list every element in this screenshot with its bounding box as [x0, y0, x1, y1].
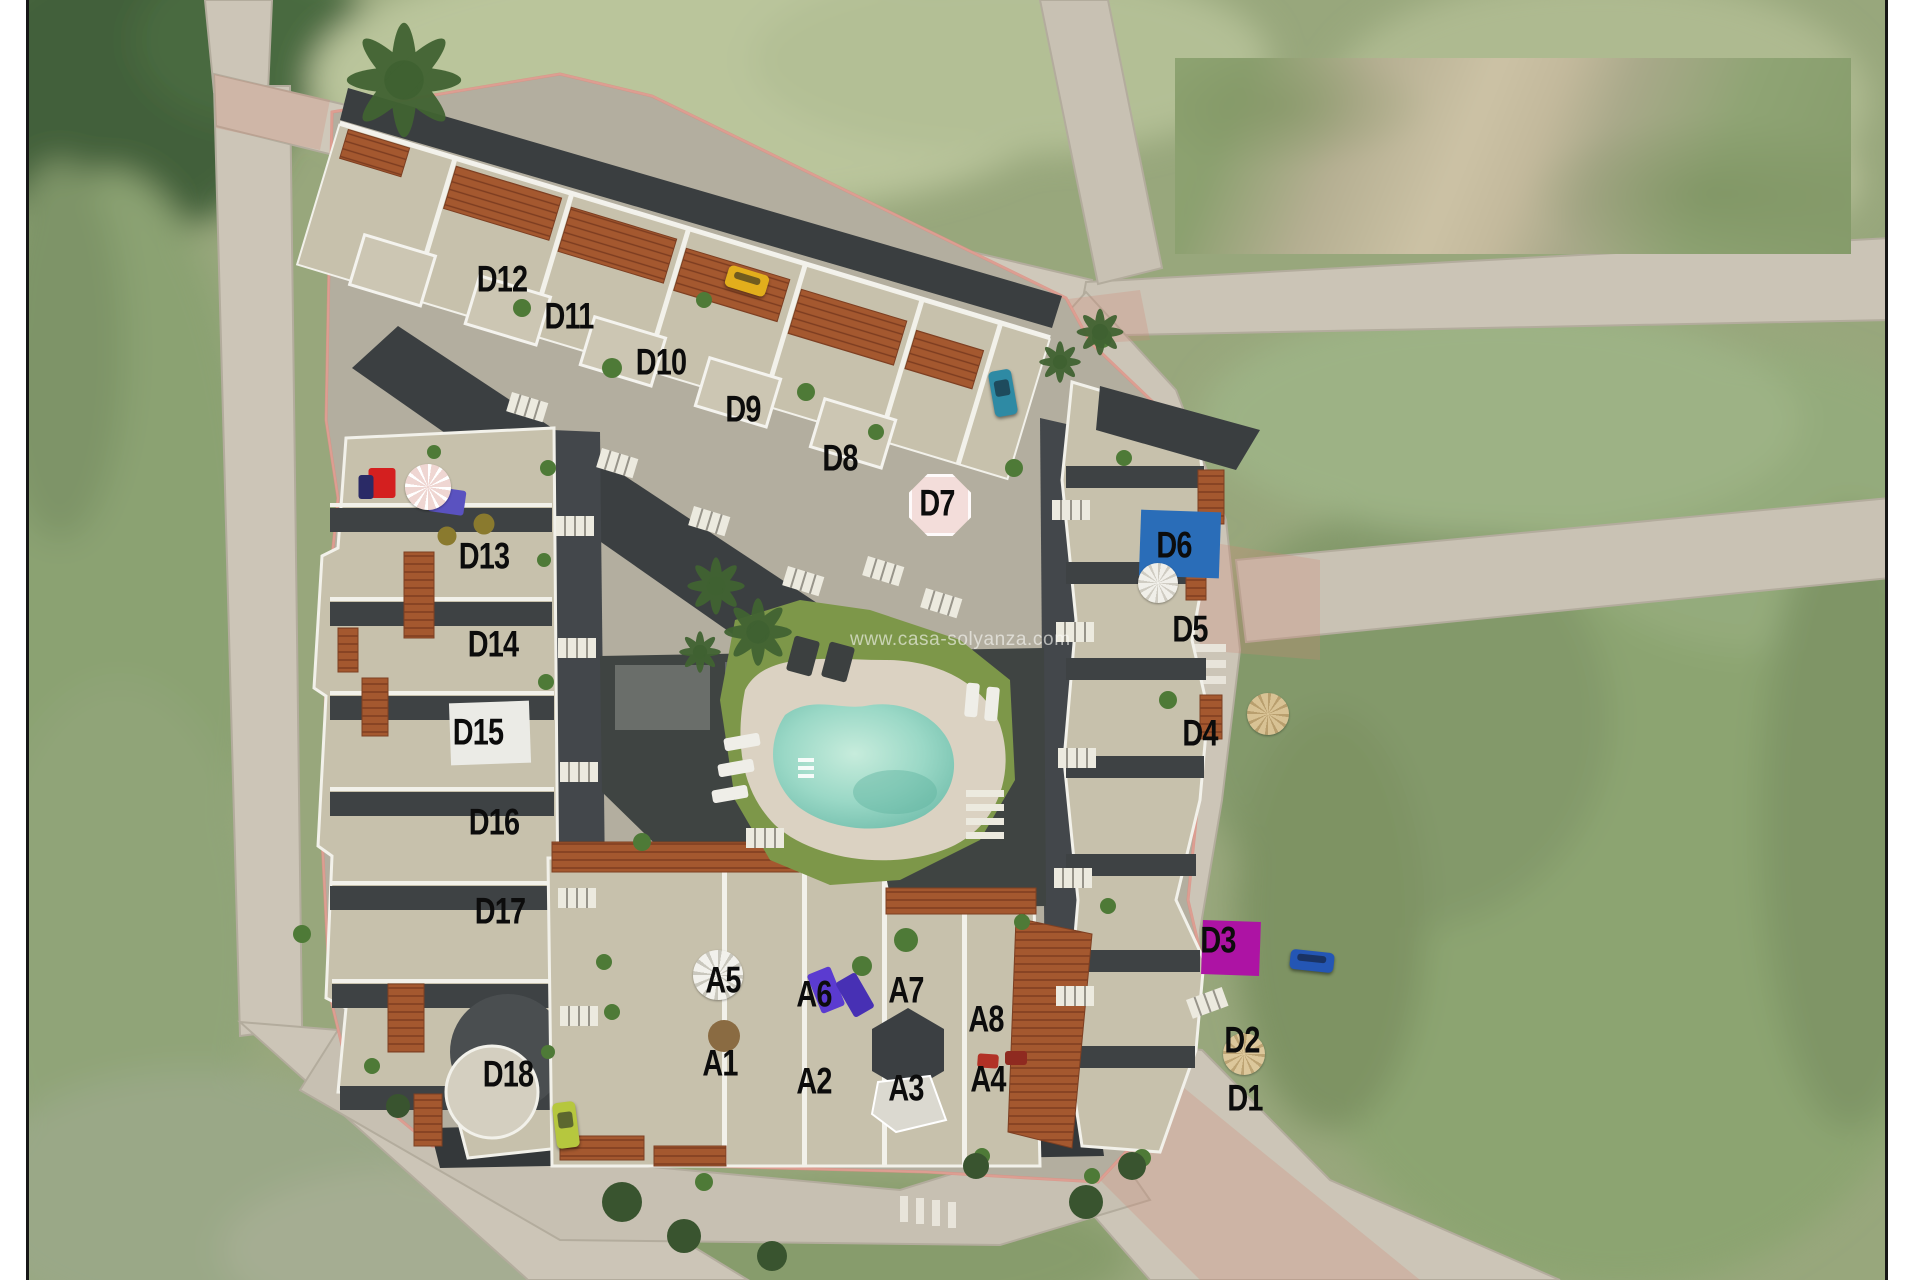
screenshot: www.casa-solyanza.com D12D11D10D9D8D7D13… — [0, 0, 1920, 1280]
blurred-region — [1175, 58, 1851, 254]
